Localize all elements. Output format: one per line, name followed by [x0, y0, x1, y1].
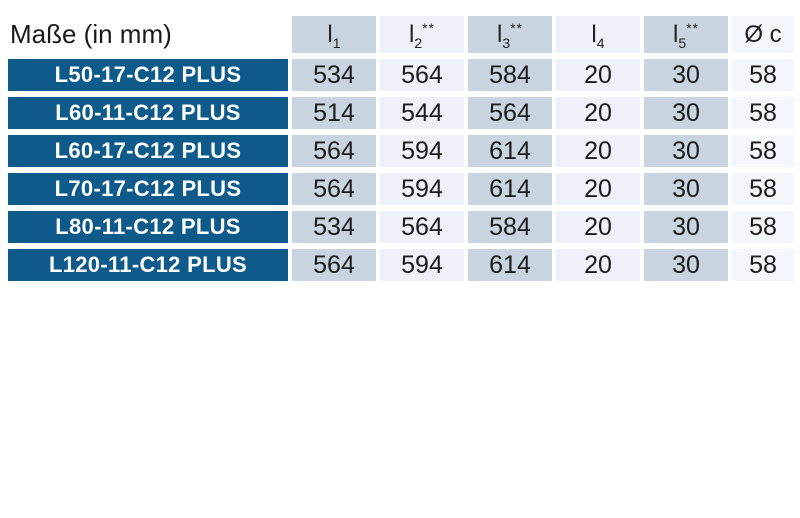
table-cell: 564 [380, 211, 464, 243]
table-cell: 544 [380, 97, 464, 129]
datasheet-page: Maße (in mm) l1 l2** l3** l4 l5** Ø c L5… [0, 0, 800, 518]
column-header-l5: l5** [644, 16, 728, 53]
column-header-diameter: Ø c [732, 16, 794, 53]
column-header-l5-text: l5** [673, 20, 699, 49]
column-header-l4-text: l4 [591, 20, 604, 49]
table-cell: 58 [732, 211, 794, 243]
table-cell: 564 [292, 173, 376, 205]
table-cell: 534 [292, 211, 376, 243]
table-cell: 58 [732, 59, 794, 91]
table-cell: 20 [556, 211, 640, 243]
table-cell: 594 [380, 249, 464, 281]
table-cell: 614 [468, 135, 552, 167]
table-row-label: L80-11-C12 PLUS [8, 211, 288, 243]
column-header-l3-text: l3** [497, 20, 523, 49]
table-cell: 564 [468, 97, 552, 129]
table-cell: 58 [732, 135, 794, 167]
table-cell: 594 [380, 173, 464, 205]
table-cell: 564 [292, 135, 376, 167]
table-row-label: L60-17-C12 PLUS [8, 135, 288, 167]
table-title: Maße (in mm) [8, 16, 288, 53]
table-cell: 564 [292, 249, 376, 281]
table-cell: 30 [644, 173, 728, 205]
table-cell: 584 [468, 211, 552, 243]
table-cell: 20 [556, 173, 640, 205]
table-cell: 20 [556, 249, 640, 281]
column-header-l1-text: l1 [327, 20, 340, 49]
table-cell: 614 [468, 249, 552, 281]
table-cell: 534 [292, 59, 376, 91]
table-row-label: L120-11-C12 PLUS [8, 249, 288, 281]
table-cell: 30 [644, 211, 728, 243]
column-header-diameter-text: Ø c [744, 21, 781, 49]
column-header-l2-text: l2** [409, 20, 435, 49]
table-cell: 20 [556, 135, 640, 167]
motor-dimension-diagram: l3 l2 l1 l4 l5 Ø c [0, 285, 800, 518]
table-row-label: L50-17-C12 PLUS [8, 59, 288, 91]
column-header-l1: l1 [292, 16, 376, 53]
table-row-label: L60-11-C12 PLUS [8, 97, 288, 129]
table-cell: 20 [556, 59, 640, 91]
table-cell: 58 [732, 249, 794, 281]
table-cell: 30 [644, 59, 728, 91]
table-cell: 594 [380, 135, 464, 167]
table-cell: 58 [732, 97, 794, 129]
table-cell: 614 [468, 173, 552, 205]
column-header-l4: l4 [556, 16, 640, 53]
table-cell: 30 [644, 97, 728, 129]
table-cell: 20 [556, 97, 640, 129]
table-cell: 514 [292, 97, 376, 129]
table-cell: 30 [644, 135, 728, 167]
table-row-label: L70-17-C12 PLUS [8, 173, 288, 205]
table-cell: 584 [468, 59, 552, 91]
dimensions-table: Maße (in mm) l1 l2** l3** l4 l5** Ø c L5… [8, 16, 794, 281]
table-cell: 564 [380, 59, 464, 91]
table-cell: 58 [732, 173, 794, 205]
column-header-l2: l2** [380, 16, 464, 53]
column-header-l3: l3** [468, 16, 552, 53]
table-cell: 30 [644, 249, 728, 281]
